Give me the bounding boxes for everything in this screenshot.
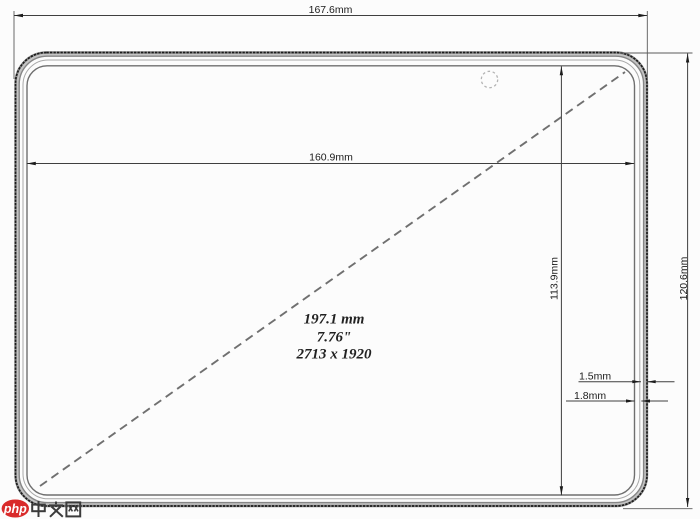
- svg-text:120.6mm: 120.6mm: [678, 256, 690, 300]
- svg-text:160.9mm: 160.9mm: [309, 152, 353, 164]
- svg-text:1.5mm: 1.5mm: [579, 371, 611, 383]
- svg-text:2713 x 1920: 2713 x 1920: [296, 347, 373, 363]
- svg-text:167.6mm: 167.6mm: [309, 4, 353, 16]
- svg-text:1.8mm: 1.8mm: [574, 390, 606, 402]
- svg-text:113.9mm: 113.9mm: [549, 257, 561, 300]
- svg-text:197.1 mm: 197.1 mm: [304, 312, 365, 328]
- svg-text:php: php: [3, 502, 27, 516]
- svg-text:7.76": 7.76": [317, 330, 352, 346]
